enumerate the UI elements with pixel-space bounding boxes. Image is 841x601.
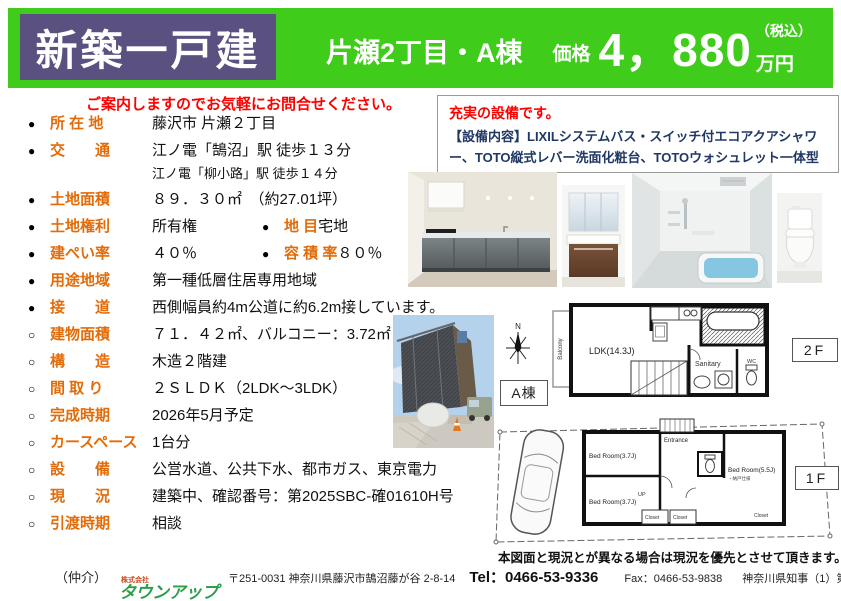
company-logo: 株式会社 タウンアップ	[119, 577, 218, 601]
real-estate-flyer: 新築一戸建 片瀬2丁目・A棟 価格 4，880 （税込） 万円 ご案内しますので…	[0, 0, 841, 601]
detail-label: 地 目	[284, 213, 318, 240]
equipment-box: 充実の設備です。 【設備内容】LIXILシステムバス・スイッチ付エコアクアシャワ…	[437, 95, 839, 173]
detail-row: ○間 取 り２ＳＬＤＫ（2LDK～3LDK）	[28, 375, 433, 402]
bullet-icon: ●	[28, 241, 50, 268]
detail-label: カースペース	[50, 429, 152, 456]
tax-note: （税込）	[756, 21, 812, 41]
detail-value: 2026年5月予定	[152, 402, 254, 429]
detail-label: 構 造	[50, 348, 152, 375]
detail-label: 完成時期	[50, 402, 152, 429]
detail-label: 引渡時期	[50, 510, 152, 537]
detail-row: ○建物面積７１．４２㎡、バルコニー：3.72㎡	[28, 321, 433, 348]
bullet-icon: ○	[28, 484, 50, 511]
svg-text:Closet: Closet	[645, 515, 660, 521]
footer: （仲介） 株式会社 タウンアップ 〒251-0031 神奈川県藤沢市鵠沼藤が谷 …	[55, 566, 835, 601]
floor-plan-2f: Balcony Sanitary WC LDK(14.3J)	[551, 303, 781, 398]
detail-sub-value: 江ノ電「柳小路」駅 徒歩１４分	[152, 164, 433, 186]
detail-label: 建物面積	[50, 321, 152, 348]
bathroom-photo	[632, 173, 772, 288]
kitchen-photo	[408, 172, 557, 287]
fax-number: Fax：0466-53-9838	[624, 570, 722, 586]
detail-label: 土地面積	[50, 186, 152, 213]
detail-row: ○カースペース1台分	[28, 429, 433, 456]
svg-text:Bed Room(3.7J): Bed Room(3.7J)	[589, 453, 636, 460]
svg-text:Entrance: Entrance	[664, 438, 689, 444]
svg-text:Sanitary: Sanitary	[695, 361, 721, 368]
vanity-photo	[562, 185, 625, 287]
svg-text:UP: UP	[638, 492, 646, 498]
detail-value: ８０％	[337, 240, 382, 267]
detail-value: 藤沢市 片瀬２丁目	[152, 110, 276, 137]
detail-value: 1台分	[152, 429, 190, 456]
bullet-icon: ○	[28, 457, 50, 484]
svg-text:Closet: Closet	[754, 513, 769, 519]
detail-value: ２ＳＬＤＫ（2LDK～3LDK）	[152, 375, 347, 402]
building-label: A棟	[500, 380, 548, 406]
detail-label: 所 在 地	[50, 110, 152, 137]
detail-label: 土地権利	[50, 213, 152, 240]
detail-label: 用途地域	[50, 267, 152, 294]
car-outline	[508, 427, 565, 536]
property-details-list: ●所 在 地藤沢市 片瀬２丁目●交 通江ノ電「鵠沼」駅 徒歩１３分江ノ電「柳小路…	[28, 110, 433, 537]
detail-row: ●用途地域第一種低層住居専用地域	[28, 267, 433, 294]
detail-value: 所有権	[152, 213, 262, 240]
equipment-title: 充実の設備です。	[449, 103, 827, 123]
bullet-icon: ○	[28, 349, 50, 376]
floor-label-1f: 1F	[795, 466, 839, 490]
bullet-icon: ●	[262, 214, 284, 241]
bullet-icon: ○	[28, 511, 50, 538]
bullet-icon: ●	[28, 214, 50, 241]
svg-text:・納戸仕様: ・納戸仕様	[728, 475, 751, 482]
detail-value: 建築中、確認番号：第2025SBC-確01610H号	[152, 483, 454, 510]
bullet-icon: ●	[28, 111, 50, 138]
detail-row: ●土地権利所有権●地 目宅地	[28, 213, 433, 240]
price-unit: 万円	[756, 49, 794, 76]
detail-row: ○完成時期2026年5月予定	[28, 402, 433, 429]
detail-value: 木造２階建	[152, 348, 227, 375]
bullet-icon: ●	[262, 241, 284, 268]
bullet-icon: ○	[28, 376, 50, 403]
detail-row: ○現 況建築中、確認番号：第2025SBC-確01610H号	[28, 483, 433, 510]
detail-value: ７１．４２㎡、バルコニー：3.72㎡	[152, 321, 391, 348]
detail-label: 容 積 率	[284, 240, 337, 267]
detail-label: 間 取 り	[50, 375, 152, 402]
svg-text:Closet: Closet	[673, 515, 688, 521]
detail-label: 設 備	[50, 456, 152, 483]
bullet-icon: ○	[28, 430, 50, 457]
svg-text:Bed Room(5.5J): Bed Room(5.5J)	[728, 467, 775, 474]
floor-label-2f: 2F	[792, 338, 838, 362]
detail-label: 交 通	[50, 137, 152, 164]
detail-row: ●所 在 地藤沢市 片瀬２丁目	[28, 110, 433, 137]
floor-plan-1f: Bed Room(3.7J) Bed Room(3.7J) Bed Room(5…	[492, 418, 838, 548]
detail-label: 現 況	[50, 483, 152, 510]
svg-text:Balcony: Balcony	[558, 338, 564, 359]
price-value: 4，880	[599, 14, 752, 80]
header-banner: 新築一戸建 片瀬2丁目・A棟 価格 4，880 （税込） 万円	[8, 8, 833, 88]
price-unit-group: （税込） 万円	[756, 21, 812, 76]
property-type-badge: 新築一戸建	[20, 14, 276, 80]
detail-label: 建ぺい率	[50, 240, 152, 267]
detail-row: ●建ぺい率４０％●容 積 率８０％	[28, 240, 433, 267]
compass-icon: N	[505, 320, 531, 366]
detail-value: 第一種低層住居専用地域	[152, 267, 317, 294]
detail-row: ○引渡時期相談	[28, 510, 433, 537]
bullet-icon: ●	[28, 268, 50, 295]
license-number: 神奈川県知事（1）第31982号	[742, 570, 841, 586]
plan-disclaimer: 本図面と現況とが異なる場合は現況を優先とさせて頂きます。	[498, 547, 841, 566]
detail-value: 公営水道、公共下水、都市ガス、東京電力	[152, 456, 437, 483]
detail-value: 江ノ電「鵠沼」駅 徒歩１３分	[152, 137, 351, 164]
price-label: 価格	[553, 39, 591, 66]
bullet-icon: ○	[28, 403, 50, 430]
detail-row: ●交 通江ノ電「鵠沼」駅 徒歩１３分	[28, 137, 433, 164]
property-name: 片瀬2丁目・A棟	[326, 31, 523, 70]
construction-site-photo	[393, 315, 494, 448]
company-address: 〒251-0031 神奈川県藤沢市鵠沼藤が谷 2-8-14	[228, 570, 455, 586]
detail-value: 相談	[152, 510, 182, 537]
bullet-icon: ○	[28, 322, 50, 349]
bullet-icon: ●	[28, 187, 50, 214]
detail-row: ●土地面積８９．３０㎡ （約27.01坪）	[28, 186, 433, 213]
detail-label: 接 道	[50, 294, 152, 321]
broker-label: （仲介）	[55, 567, 107, 586]
phone-number: Tel：0466-53-9336	[469, 566, 598, 587]
detail-value: 宅地	[318, 213, 348, 240]
toilet-photo	[777, 193, 822, 283]
detail-value: ４０％	[152, 240, 262, 267]
detail-row: ○設 備公営水道、公共下水、都市ガス、東京電力	[28, 456, 433, 483]
detail-row: ○構 造木造２階建	[28, 348, 433, 375]
svg-text:LDK(14.3J): LDK(14.3J)	[589, 346, 635, 356]
svg-text:N: N	[515, 322, 521, 331]
bullet-icon: ●	[28, 138, 50, 165]
banner-title-group: 片瀬2丁目・A棟 価格 4，880 （税込） 万円	[326, 8, 812, 88]
bullet-icon: ●	[28, 295, 50, 322]
company-name: タウンアップ	[119, 584, 218, 601]
detail-value: ８９．３０㎡ （約27.01坪）	[152, 186, 347, 213]
detail-row: ●接 道西側幅員約4m公道に約6.2m接しています。	[28, 294, 433, 321]
svg-text:Bed Room(3.7J): Bed Room(3.7J)	[589, 499, 636, 506]
svg-text:WC: WC	[747, 359, 756, 365]
